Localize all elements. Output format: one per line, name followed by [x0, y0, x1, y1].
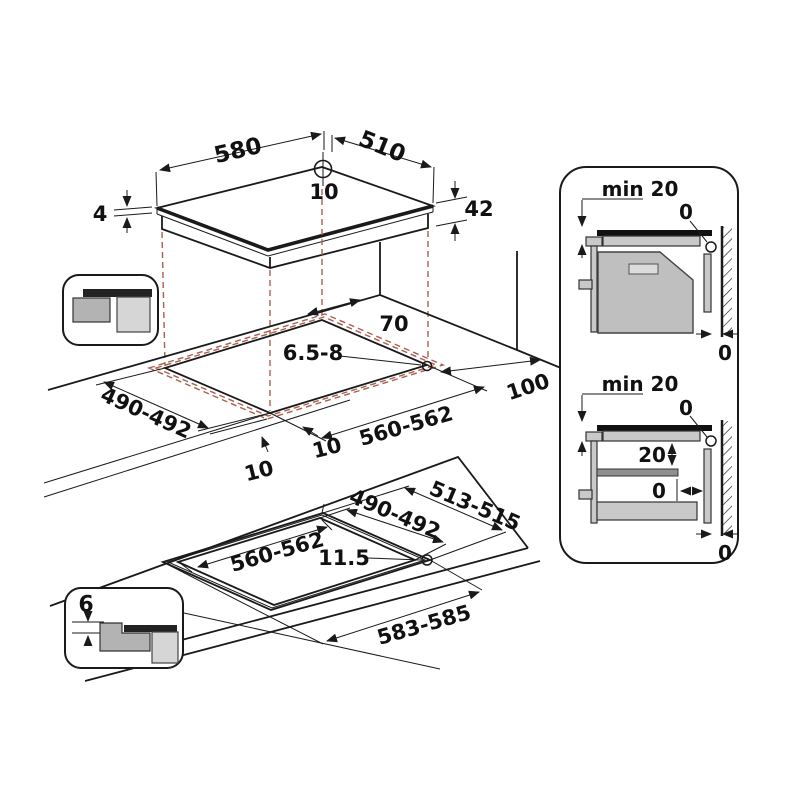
dim-hob-depth: 510	[355, 126, 409, 168]
label-wall-gap-top-1: 0	[679, 200, 693, 224]
label-wall-gap-top-2: 0	[679, 396, 693, 420]
installation-diagram-page: 580 510 10 4 42 490-492 560-562	[0, 0, 800, 800]
wall-hatching-2	[723, 421, 732, 535]
cabinet-section-flush	[152, 632, 178, 663]
shelf	[597, 469, 678, 476]
flush-rim-outer	[163, 513, 430, 610]
cabinet-side-panel-2	[591, 441, 597, 523]
flush-cutout-view: 513-515 490-492 560-562 11.5 583-585 6	[50, 457, 540, 681]
dim-overhang-front: 10	[310, 433, 344, 463]
hob-body-side-2	[603, 431, 700, 441]
label-wall-gap-bottom-2: 0	[718, 541, 732, 565]
hob-glass-section-2	[597, 425, 712, 431]
label-min-clearance-1: min 20	[602, 177, 679, 201]
worktop-surface	[83, 289, 152, 297]
dim-hob-width: 580	[212, 133, 265, 169]
inset-standard-mounting	[63, 275, 158, 345]
label-shelf-side-gap: 0	[652, 479, 666, 503]
fixing-clamp	[586, 237, 602, 246]
clearance-panel: min 20 0 0 min 20	[560, 167, 738, 565]
dim-overhang-left: 10	[242, 456, 276, 486]
dim-glass-thickness: 4	[93, 202, 108, 226]
dim-side-clearance: 100	[503, 369, 552, 405]
dim-outer-width: 583-585	[374, 600, 473, 650]
dim-flush-cutout-width: 560-562	[227, 527, 326, 577]
dim-rim-width: 11.5	[318, 546, 370, 570]
dim-cutout-width: 560-562	[356, 401, 455, 451]
hinge-tab-2	[579, 490, 592, 499]
oven-vent	[629, 264, 658, 274]
hinge-tab	[579, 280, 592, 289]
dim-cutout-depth: 490-492	[97, 382, 195, 443]
label-shelf-gap: 20	[638, 443, 666, 467]
dim-body-height: 42	[464, 197, 493, 221]
dim-hole-diameter: 6.5-8	[283, 341, 344, 365]
hob-installation-drawing: 580 510 10 4 42 490-492 560-562	[0, 0, 800, 800]
worktop-cutout-view: 490-492 560-562 100 70 6.5-8 10 10	[44, 242, 578, 497]
worktop-surface-flush	[124, 625, 177, 632]
cabinet-section	[117, 297, 150, 332]
hob-body-side	[603, 236, 700, 246]
fixing-clamp-2	[586, 432, 602, 441]
hob-body-section	[73, 298, 110, 322]
drawer	[597, 502, 697, 520]
rear-spacer	[704, 254, 711, 312]
label-min-clearance-2: min 20	[602, 372, 679, 396]
hob-glass-section	[597, 230, 712, 236]
dim-hole-back-offset: 70	[379, 312, 408, 336]
flush-rim-inner	[178, 518, 415, 605]
dim-hole-offset: 10	[309, 180, 338, 204]
wall-hatching	[723, 227, 732, 335]
label-wall-gap-bottom-1: 0	[718, 341, 732, 365]
dim-recess-depth: 6	[78, 593, 93, 618]
rear-spacer-2	[704, 449, 711, 523]
